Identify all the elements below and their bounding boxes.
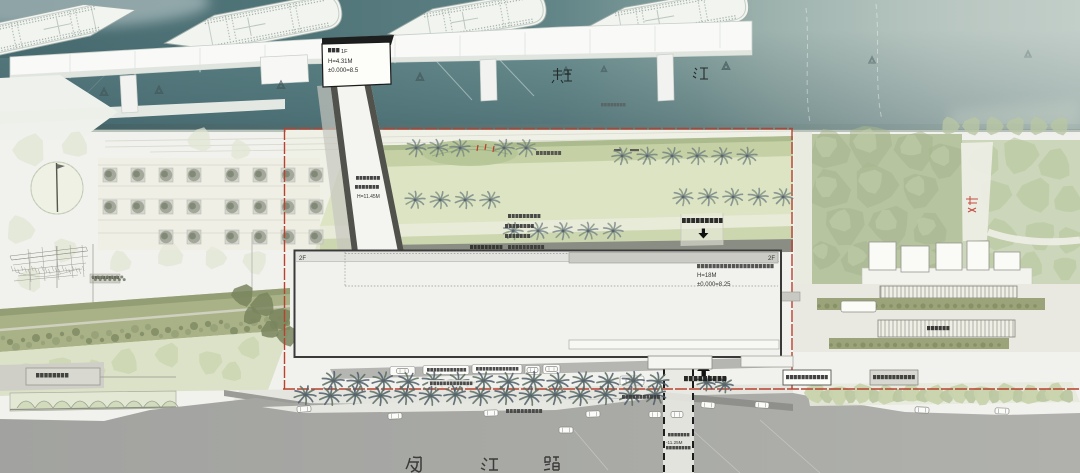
svg-text:H=11.45M: H=11.45M [357,194,380,200]
svg-text:H=4.31M: H=4.31M [328,59,353,65]
svg-text:H=18M: H=18M [697,273,717,279]
svg-text:2F: 2F [299,256,306,262]
svg-text:±0.000=8.25: ±0.000=8.25 [697,282,731,288]
svg-text:±0.000=8.5: ±0.000=8.5 [328,68,359,74]
svg-text:-11.25M: -11.25M [666,440,683,445]
svg-text:1F: 1F [341,49,348,55]
svg-text:2F: 2F [768,256,775,262]
